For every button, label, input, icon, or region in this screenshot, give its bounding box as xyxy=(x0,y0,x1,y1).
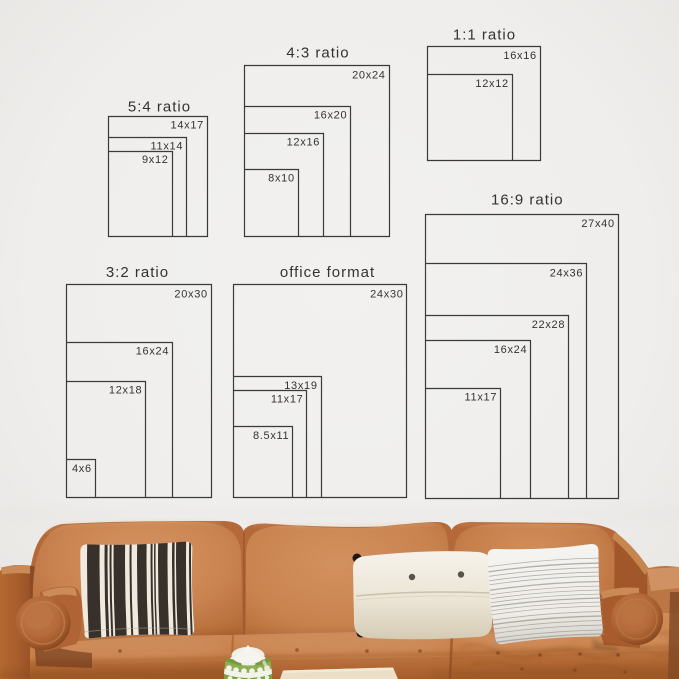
svg-text:4:3 ratio: 4:3 ratio xyxy=(286,45,349,62)
svg-text:20x30: 20x30 xyxy=(174,288,207,300)
svg-text:27x40: 27x40 xyxy=(581,218,614,230)
svg-text:14x17: 14x17 xyxy=(171,120,204,132)
svg-text:8x10: 8x10 xyxy=(268,173,295,185)
svg-text:1:1 ratio: 1:1 ratio xyxy=(453,27,516,44)
svg-text:16x16: 16x16 xyxy=(503,50,536,62)
svg-text:11x14: 11x14 xyxy=(151,141,184,153)
svg-text:3:2 ratio: 3:2 ratio xyxy=(106,264,169,281)
svg-text:9x12: 9x12 xyxy=(142,154,169,166)
svg-text:20x24: 20x24 xyxy=(352,70,385,82)
svg-text:12x16: 12x16 xyxy=(287,137,320,149)
svg-text:8.5x11: 8.5x11 xyxy=(253,430,289,442)
svg-text:24x30: 24x30 xyxy=(370,288,403,300)
svg-text:13x19: 13x19 xyxy=(284,380,317,392)
svg-text:22x28: 22x28 xyxy=(532,319,565,331)
svg-text:12x18: 12x18 xyxy=(109,385,142,397)
svg-text:16x24: 16x24 xyxy=(136,346,169,358)
svg-text:16x20: 16x20 xyxy=(314,110,347,122)
svg-text:11x17: 11x17 xyxy=(465,392,498,404)
svg-text:16:9 ratio: 16:9 ratio xyxy=(491,191,564,208)
svg-text:5:4 ratio: 5:4 ratio xyxy=(128,99,191,116)
svg-text:16x24: 16x24 xyxy=(494,344,527,356)
svg-text:24x36: 24x36 xyxy=(550,267,583,279)
svg-text:11x17: 11x17 xyxy=(271,394,304,406)
svg-text:office format: office format xyxy=(280,264,375,281)
svg-text:12x12: 12x12 xyxy=(475,78,508,90)
svg-text:4x6: 4x6 xyxy=(72,463,92,475)
